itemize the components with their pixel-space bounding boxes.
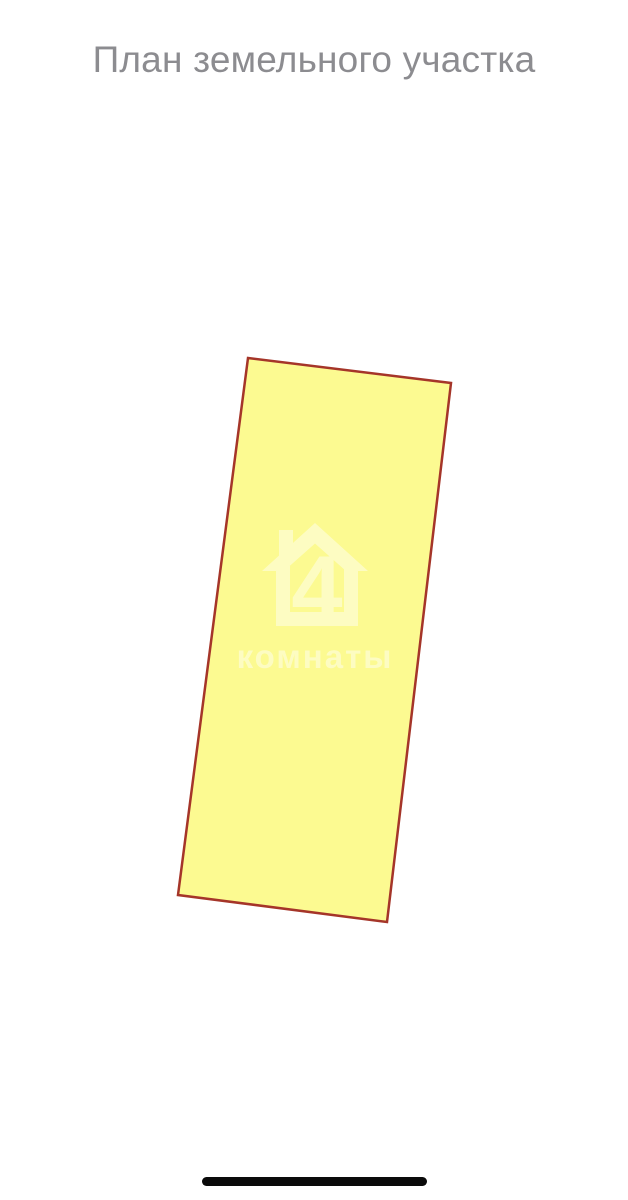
watermark-number: 4 — [291, 538, 342, 640]
screen: План земельного участка 4 комнаты — [0, 0, 628, 1200]
home-indicator[interactable] — [202, 1177, 427, 1186]
watermark-brand-text: комнаты — [237, 638, 394, 675]
land-plot-plan-image[interactable]: 4 комнаты — [0, 0, 628, 1200]
